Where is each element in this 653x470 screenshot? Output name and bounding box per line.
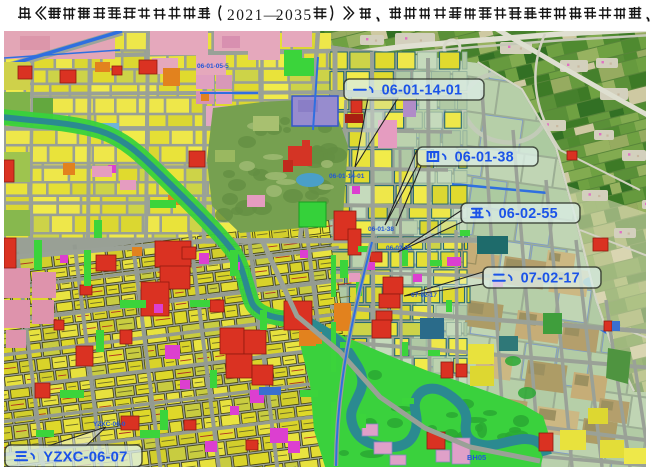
svg-text:07-02-17: 07-02-17 [521,271,580,287]
svg-text:06-02-55: 06-02-55 [386,245,412,252]
svg-text:06-02-55: 06-02-55 [499,206,558,222]
svg-text:5: 5 [303,7,311,24]
svg-text:2: 2 [227,7,235,24]
svg-text:0: 0 [285,7,293,24]
svg-text:YZXC-06-07: YZXC-06-07 [43,449,127,465]
svg-text:2: 2 [245,7,253,24]
svg-text:06-01-05-5: 06-01-05-5 [197,63,229,70]
svg-text:1: 1 [255,7,263,24]
svg-text:YZXC-06-0: YZXC-06-0 [93,421,126,428]
svg-text:0: 0 [236,7,244,24]
svg-text:06-01-14-01: 06-01-14-01 [329,173,365,180]
svg-text:BH05: BH05 [467,453,486,462]
svg-text:06-01-14-01: 06-01-14-01 [382,83,463,99]
svg-text:06-01-38: 06-01-38 [455,150,514,166]
svg-text:07-02-17: 07-02-17 [411,292,437,299]
svg-text:2: 2 [276,7,284,24]
svg-text:06-01-38: 06-01-38 [368,226,394,233]
svg-text:3: 3 [294,7,302,24]
